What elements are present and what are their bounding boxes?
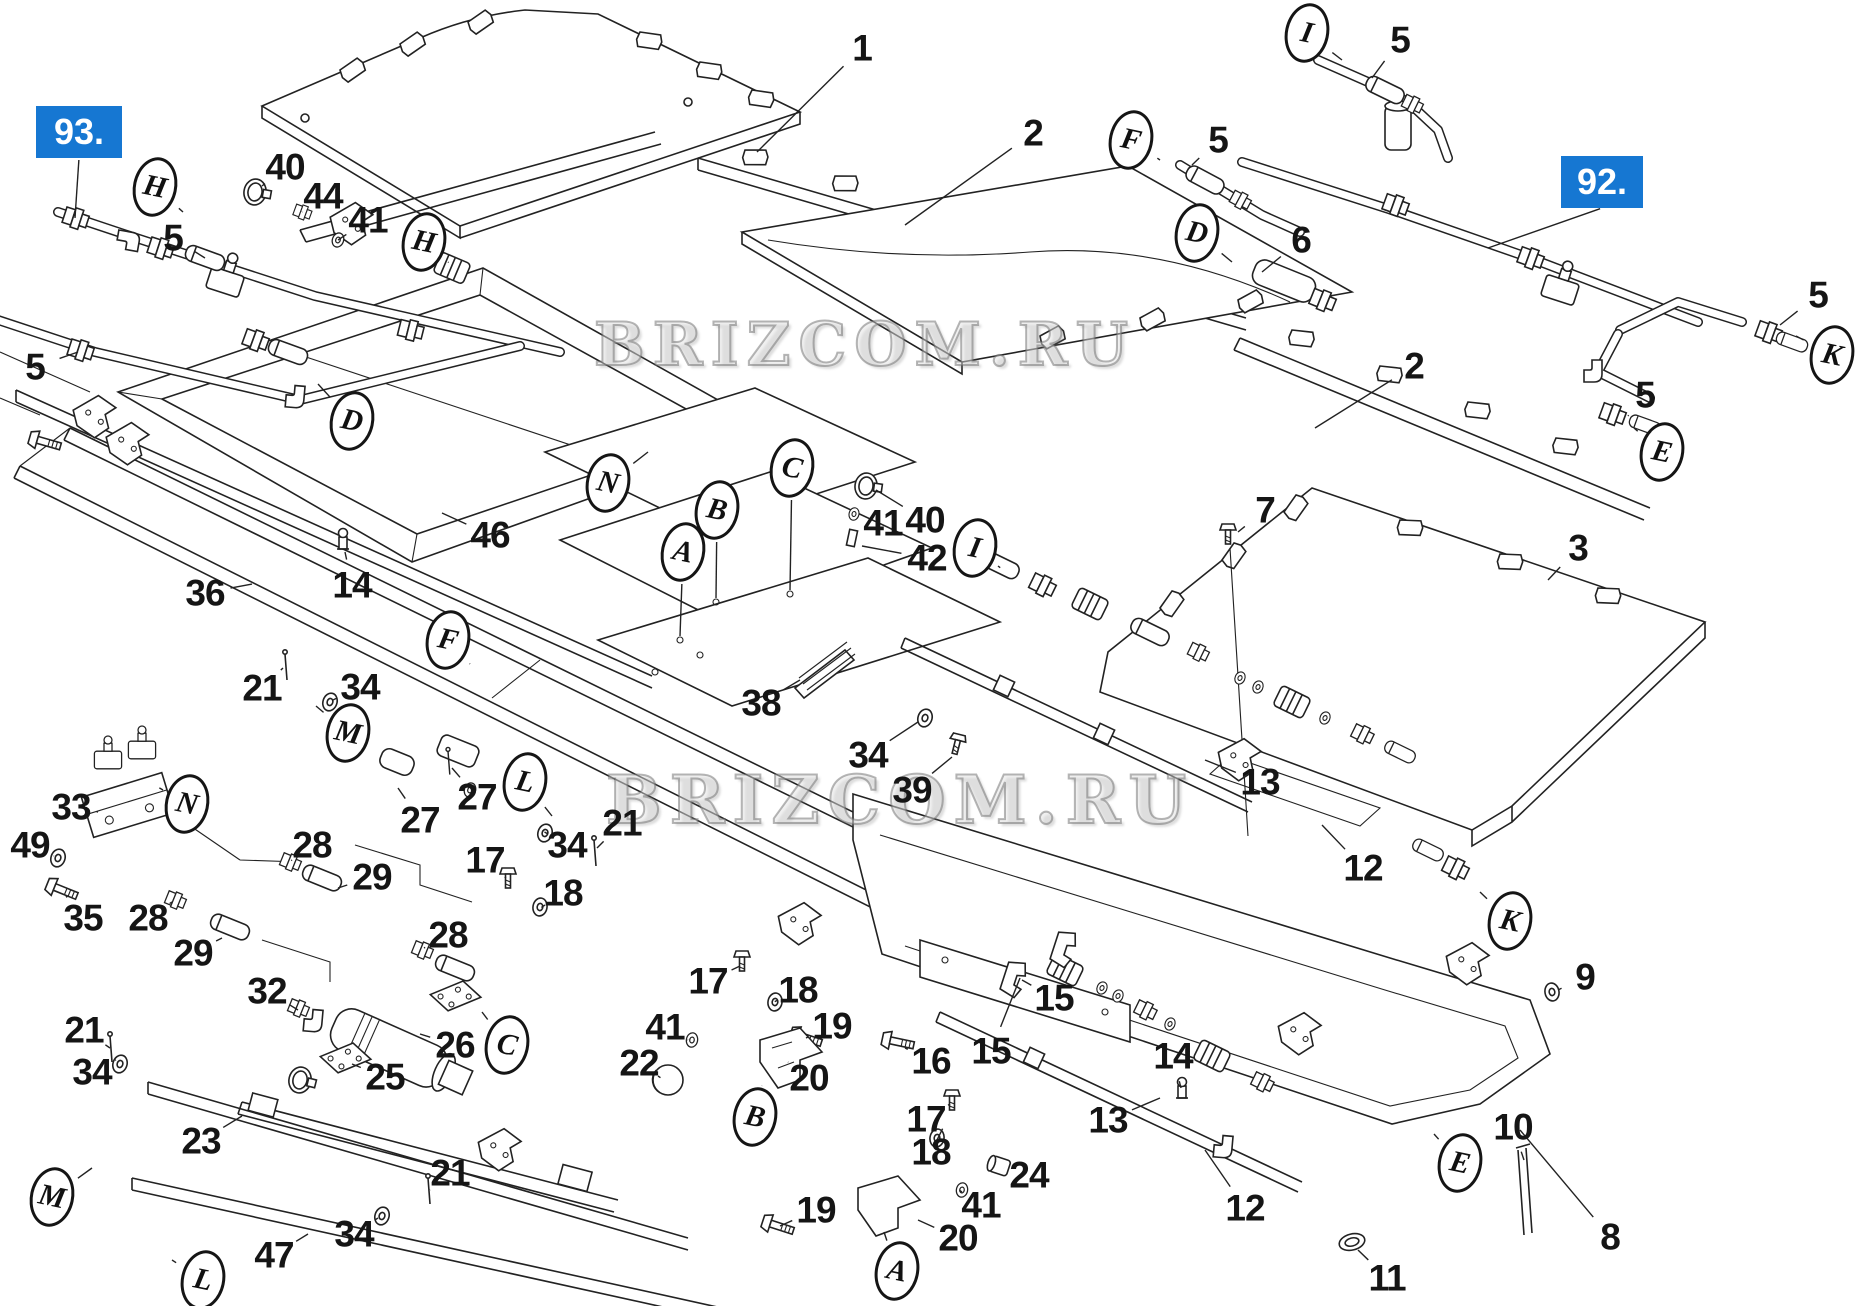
part-number-label-39: 39 (892, 772, 931, 809)
part-number-label-18: 18 (778, 972, 817, 1009)
leader-line (179, 208, 183, 212)
leader-line (1358, 1250, 1368, 1260)
part-number-label-20: 20 (789, 1060, 828, 1097)
leader-line (1192, 158, 1199, 165)
part-number-label-36: 36 (185, 575, 224, 612)
leader-line (716, 542, 717, 598)
part-number-label-34: 34 (340, 669, 379, 706)
leader-line (1780, 311, 1798, 325)
leader-line (424, 947, 425, 948)
part-number-label-28: 28 (128, 900, 167, 937)
part-number-label-28: 28 (428, 917, 467, 954)
part-number-label-11: 11 (1368, 1260, 1405, 1297)
leader-line (1238, 526, 1245, 532)
part-number-label-29: 29 (173, 935, 212, 972)
leader-line (1480, 892, 1487, 899)
part-number-label-15: 15 (971, 1033, 1010, 1070)
part-number-label-35: 35 (63, 900, 102, 937)
leader-line (231, 584, 252, 588)
watermark: BRIZCOM.RU (594, 310, 1136, 380)
leader-line (1322, 825, 1345, 849)
parts-diagram-page: BRIZCOM.RUBRIZCOM.RU93.92.12235555556789… (0, 0, 1857, 1306)
panel-part1 (262, 9, 800, 238)
part-number-label-10: 10 (1493, 1109, 1532, 1146)
part-number-label-7: 7 (1255, 492, 1275, 529)
part-number-label-13: 13 (1240, 764, 1279, 801)
part-number-label-27: 27 (457, 779, 496, 816)
part-number-label-6: 6 (1291, 222, 1311, 259)
leader-line (1157, 158, 1160, 160)
part-number-label-26: 26 (435, 1027, 474, 1064)
part-number-label-21: 21 (64, 1012, 103, 1049)
leader-line (545, 807, 552, 816)
part-number-label-23: 23 (181, 1123, 220, 1160)
subdiagram-link-93[interactable]: 93. (36, 106, 122, 158)
valve-block-assembly (44, 726, 482, 1103)
part-number-label-34: 34 (72, 1054, 111, 1091)
part-number-label-28: 28 (292, 827, 331, 864)
part-number-label-40: 40 (265, 149, 304, 186)
part-number-label-3: 3 (1568, 530, 1588, 567)
subdiagram-link-92[interactable]: 92. (1561, 156, 1643, 208)
part-number-label-17: 17 (465, 842, 504, 879)
part-number-label-34: 34 (547, 827, 586, 864)
leader-line (172, 1260, 176, 1263)
part-number-label-18: 18 (543, 875, 582, 912)
leader-line (505, 877, 506, 878)
part-number-label-44: 44 (303, 178, 342, 215)
part-number-label-5: 5 (1635, 377, 1655, 414)
part-number-label-1: 1 (852, 30, 872, 67)
part-number-label-46: 46 (470, 517, 509, 554)
part-number-label-17: 17 (688, 963, 727, 1000)
part-number-label-2: 2 (1404, 348, 1424, 385)
part-number-label-27: 27 (400, 802, 439, 839)
part-number-label-12: 12 (1343, 850, 1382, 887)
leader-line (1521, 1152, 1524, 1160)
part-number-label-15: 15 (1034, 980, 1073, 1017)
part-number-label-8: 8 (1600, 1219, 1620, 1256)
leader-line (890, 722, 918, 741)
leader-line (1372, 61, 1385, 78)
leader-line (1332, 53, 1342, 60)
part-number-label-40: 40 (905, 502, 944, 539)
part-number-label-5: 5 (1208, 122, 1228, 159)
part-number-label-13: 13 (1088, 1102, 1127, 1139)
strip-part2-lower (1234, 324, 1650, 520)
part-number-label-42: 42 (907, 540, 946, 577)
part-number-label-47: 47 (254, 1237, 293, 1274)
leader-line (1434, 1134, 1439, 1139)
leader-line (216, 938, 222, 941)
part-number-label-2: 2 (1023, 115, 1043, 152)
leader-line (78, 1168, 92, 1178)
part-number-label-14: 14 (332, 567, 371, 604)
leader-line (345, 552, 347, 560)
part-number-label-5: 5 (1808, 277, 1828, 314)
part-number-label-18: 18 (911, 1134, 950, 1171)
part-number-label-12: 12 (1225, 1190, 1264, 1227)
part-number-label-9: 9 (1575, 959, 1595, 996)
leader-line (316, 706, 324, 712)
fitting-partD1 (241, 327, 309, 367)
part-number-label-19: 19 (812, 1008, 851, 1045)
part-number-label-24: 24 (1009, 1157, 1048, 1194)
leader-line (420, 1034, 430, 1037)
part-number-label-34: 34 (848, 737, 887, 774)
part-number-label-33: 33 (51, 789, 90, 826)
part-number-label-19: 19 (796, 1192, 835, 1229)
leader-line (1628, 415, 1629, 416)
leader-line (1315, 380, 1392, 428)
part-number-label-49: 49 (10, 827, 49, 864)
leader-line (105, 1045, 110, 1048)
part-number-label-41: 41 (961, 1187, 1000, 1224)
part-number-label-21: 21 (242, 670, 281, 707)
part-number-label-21: 21 (430, 1155, 469, 1192)
part-number-label-14: 14 (1153, 1038, 1192, 1075)
part-number-label-32: 32 (247, 973, 286, 1010)
leader-line (296, 1234, 308, 1241)
part-number-label-5: 5 (1390, 22, 1410, 59)
part-number-label-16: 16 (911, 1043, 950, 1080)
leader-line (398, 788, 405, 799)
part-number-label-38: 38 (741, 685, 780, 722)
part-number-label-5: 5 (163, 220, 183, 257)
leader-line (1488, 209, 1600, 248)
part-number-label-21: 21 (602, 805, 641, 842)
part-number-label-22: 22 (619, 1045, 658, 1082)
part-number-label-41: 41 (645, 1009, 684, 1046)
part-number-label-5: 5 (25, 349, 45, 386)
leader-line (482, 1012, 488, 1019)
part-number-label-34: 34 (334, 1216, 373, 1253)
part-number-label-25: 25 (365, 1059, 404, 1096)
leader-line (918, 1220, 934, 1227)
part-number-label-29: 29 (352, 859, 391, 896)
part-number-label-41: 41 (348, 202, 387, 239)
part-number-label-41: 41 (863, 505, 902, 542)
